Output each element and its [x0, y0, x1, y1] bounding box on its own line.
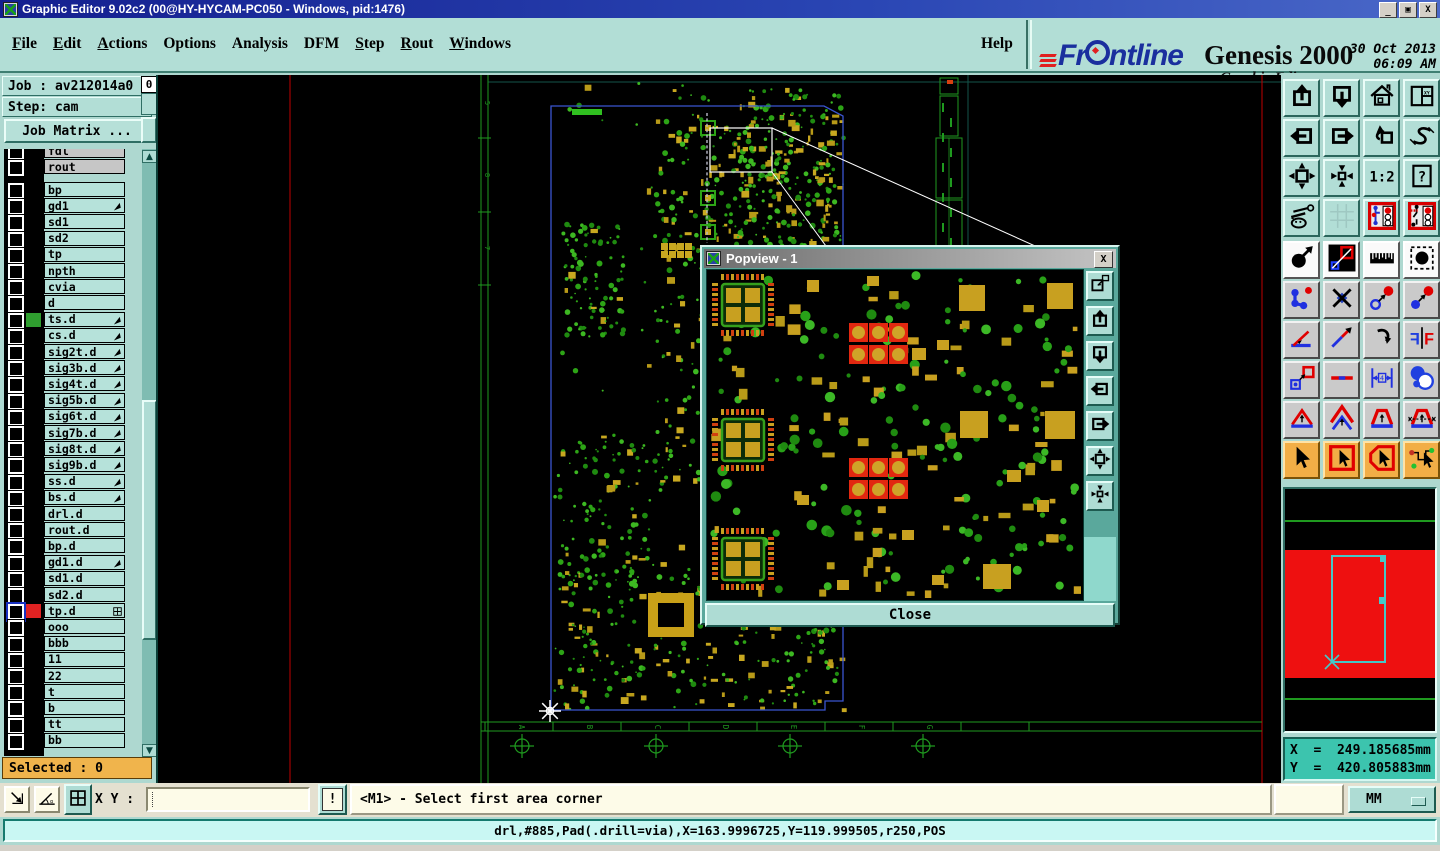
layer-checkbox[interactable]: [8, 248, 24, 264]
layer-name[interactable]: sig9b.d: [44, 457, 125, 472]
layer-checkbox[interactable]: [8, 507, 24, 523]
layer-row[interactable]: rout.d: [2, 522, 141, 538]
resize-pointer-icon: [7, 788, 27, 812]
layer-name[interactable]: sig4t.d: [44, 376, 125, 391]
layer-checkbox[interactable]: [8, 491, 24, 507]
mirror-feature-button[interactable]: FF: [1403, 321, 1440, 359]
layer-row[interactable]: t: [2, 684, 141, 700]
measure-angle-icon: [1288, 324, 1316, 356]
close-button[interactable]: X: [1419, 2, 1437, 18]
center-view-icon: [1328, 162, 1356, 194]
snap-angle-button[interactable]: α: [34, 786, 60, 813]
layer-color-swatch: [26, 313, 41, 327]
menu-item-file[interactable]: File: [12, 35, 37, 53]
draw-line-button[interactable]: [1323, 321, 1360, 359]
layer-arrow-icon: [113, 413, 122, 422]
list-counter-cell: [141, 93, 157, 115]
layer-name[interactable]: sd1: [44, 214, 125, 229]
layer-name[interactable]: sd2: [44, 231, 125, 246]
svg-text:5: 5: [483, 101, 491, 105]
touching-features-button[interactable]: [1403, 361, 1440, 399]
pan-right-button[interactable]: [1323, 119, 1360, 157]
contour-fill-4-icon: [1408, 404, 1436, 436]
pop-zoom-in-icon: [1089, 308, 1111, 334]
layer-arrow-icon: [113, 559, 122, 568]
layer-name[interactable]: tp: [44, 247, 125, 262]
alert-button-frame: !: [318, 784, 347, 815]
menu-item-step[interactable]: Step: [355, 35, 384, 53]
pop-zoom-in-button[interactable]: [1086, 306, 1114, 336]
layer-checkbox[interactable]: [8, 539, 24, 555]
layer-row[interactable]: bp.d: [2, 538, 141, 554]
layer-row[interactable]: sd2: [2, 231, 141, 247]
bottom-spacer: [1274, 784, 1344, 815]
move-to-layer-icon: [1408, 284, 1436, 316]
layer-checkbox[interactable]: [8, 199, 24, 215]
measure-ruler-icon: [1368, 244, 1396, 276]
layer-checkbox[interactable]: [8, 458, 24, 474]
move-feature-button[interactable]: [1283, 241, 1320, 279]
pop-zoom-out-icon: [1089, 343, 1111, 369]
grid-setup-icon: [1328, 202, 1356, 234]
layer-name[interactable]: sd1.d: [44, 571, 125, 586]
svg-text:D: D: [721, 725, 730, 730]
layer-row[interactable]: 22: [2, 668, 141, 684]
split-views-xy-button[interactable]: XY: [1403, 79, 1440, 117]
select-mode-contour-button[interactable]: [1363, 441, 1400, 479]
select-chain-icon: [1288, 284, 1316, 316]
pan-left-button[interactable]: [1283, 119, 1320, 157]
display-profile-2-button[interactable]: [1403, 199, 1440, 237]
fit-window-icon: [1288, 162, 1316, 194]
layer-row[interactable]: sig7b.d: [2, 425, 141, 441]
layer-row[interactable]: tp.d: [2, 603, 141, 619]
dropdown-indicator: [1411, 797, 1426, 806]
menu-item-dfm[interactable]: DFM: [304, 35, 339, 53]
snap-angle-icon: α: [37, 788, 57, 812]
display-profile-1-icon: [1368, 202, 1396, 234]
layer-name[interactable]: bbb: [44, 636, 125, 651]
job-matrix-button[interactable]: Job Matrix ...: [4, 119, 150, 143]
layer-row[interactable]: sig3b.d: [2, 360, 141, 376]
alert-button[interactable]: !: [322, 788, 343, 811]
layer-checkbox[interactable]: [8, 280, 24, 296]
layer-arrow-icon: [113, 364, 122, 373]
layer-name[interactable]: bp: [44, 182, 125, 197]
layer-name[interactable]: sig3b.d: [44, 360, 125, 375]
measure-ruler-button[interactable]: [1363, 241, 1400, 279]
svg-text:1:2: 1:2: [1369, 169, 1394, 185]
layer-checkbox[interactable]: [8, 442, 24, 458]
pop-pan-left-icon: [1089, 378, 1111, 404]
layer-checkbox[interactable]: [8, 475, 24, 491]
select-mode-net-button[interactable]: [1403, 441, 1440, 479]
layer-checkbox[interactable]: [8, 296, 24, 312]
copy-to-layer-icon: [1368, 284, 1396, 316]
layer-checkbox[interactable]: [8, 556, 24, 572]
help-context-button[interactable]: ?: [1403, 159, 1440, 197]
select-mode-single-icon: [1288, 444, 1316, 476]
layer-name[interactable]: sig5b.d: [44, 393, 125, 408]
layer-row[interactable]: 11: [2, 652, 141, 668]
pop-fit-window-icon: [1089, 448, 1111, 474]
layer-name[interactable]: bb: [44, 733, 125, 748]
svg-text:B: B: [585, 725, 594, 730]
pane-grid-button[interactable]: [64, 784, 92, 815]
datetime-display: 30 Oct 201306:09 AM: [1350, 42, 1436, 72]
layer-checkbox[interactable]: [8, 653, 24, 669]
touching-features-icon: [1408, 364, 1436, 396]
layer-arrow-icon: [113, 494, 122, 503]
layer-checkbox[interactable]: [8, 232, 24, 248]
layer-row[interactable]: ts.d: [2, 312, 141, 328]
popout-view-button[interactable]: [1086, 271, 1114, 301]
zoom-out-button[interactable]: [1323, 79, 1360, 117]
prompt-message-bar: <M1> - Select first area corner: [350, 784, 1272, 815]
navigator-handle: [1380, 556, 1386, 562]
layer-checkbox[interactable]: [8, 361, 24, 377]
svg-text:A: A: [517, 725, 526, 730]
layer-name[interactable]: fdl: [44, 149, 125, 158]
layer-row[interactable]: bp: [2, 182, 141, 198]
layer-checkbox[interactable]: [8, 183, 24, 199]
move-feature-icon: [1288, 244, 1316, 276]
layer-row[interactable]: cs.d: [2, 328, 141, 344]
layer-name[interactable]: tp.d: [44, 603, 125, 618]
zoom-in-button[interactable]: [1283, 79, 1320, 117]
popout-view-icon: [1089, 273, 1111, 299]
layer-row[interactable]: b: [2, 700, 141, 716]
layer-scrollbar-thumb[interactable]: [142, 400, 157, 640]
select-pad-button[interactable]: [1403, 241, 1440, 279]
layer-arrow-icon: [113, 348, 122, 357]
rotate-feature-icon: [1368, 324, 1396, 356]
layer-checkbox[interactable]: [8, 718, 24, 734]
layer-arrow-icon: [113, 332, 122, 341]
layer-name[interactable]: gd1.d: [44, 555, 125, 570]
layer-checkbox[interactable]: [8, 377, 24, 393]
select-mode-net-icon: [1408, 444, 1436, 476]
layer-list: fdlroutbpgd1sd1sd2tpnpthcviadts.dcs.dsig…: [2, 149, 141, 757]
layer-row[interactable]: sig4t.d: [2, 376, 141, 392]
svg-text:C: C: [653, 725, 662, 730]
contour-fill-4-button[interactable]: [1403, 401, 1440, 439]
layer-checkbox[interactable]: [8, 620, 24, 636]
layer-name[interactable]: rout.d: [44, 522, 125, 537]
menu-item-windows[interactable]: Windows: [449, 35, 511, 53]
layer-name[interactable]: d: [44, 295, 125, 310]
resize-feature-button[interactable]: [1283, 361, 1320, 399]
layer-arrow-icon: [113, 429, 122, 438]
popview-window: Popview - 1 X Close: [700, 245, 1120, 625]
pop-fit-window-button[interactable]: [1086, 446, 1114, 476]
popview-titlebar[interactable]: Popview - 1 X: [704, 249, 1116, 268]
serpentine-view-button[interactable]: [1403, 119, 1440, 157]
menu-item-edit[interactable]: Edit: [53, 35, 81, 53]
layer-checkbox[interactable]: [8, 523, 24, 539]
popview-title: Popview - 1: [726, 251, 798, 266]
center-view-button[interactable]: [1323, 159, 1360, 197]
layer-row[interactable]: fdl: [2, 149, 141, 159]
layer-row[interactable]: sd1: [2, 214, 141, 230]
menu-item-options[interactable]: Options: [163, 35, 216, 53]
pan-left-icon: [1288, 122, 1316, 154]
layer-checkbox[interactable]: [8, 637, 24, 653]
step-name-field[interactable]: Step: cam: [2, 97, 152, 117]
layer-name[interactable]: 11: [44, 652, 125, 667]
layer-row[interactable]: sig2t.d: [2, 344, 141, 360]
list-mini-button[interactable]: [141, 117, 157, 143]
layer-row[interactable]: bbb: [2, 636, 141, 652]
layer-arrow-icon: [113, 202, 122, 211]
contour-fill-1-button[interactable]: [1283, 401, 1320, 439]
svg-text:F: F: [1409, 330, 1419, 348]
draw-line-icon: [1328, 324, 1356, 356]
layer-name[interactable]: sig2t.d: [44, 344, 125, 359]
layer-checkbox[interactable]: [8, 345, 24, 361]
split-views-xy-icon: XY: [1408, 82, 1436, 114]
select-mode-box-button[interactable]: [1323, 441, 1360, 479]
layer-arrow-icon: [113, 397, 122, 406]
zoom-out-icon: [1328, 82, 1356, 114]
layer-arrow-icon: [113, 445, 122, 454]
home-view-button[interactable]: [1363, 79, 1400, 117]
job-name-field[interactable]: Job : av212014a0: [2, 76, 152, 96]
svg-text:8: 8: [483, 173, 491, 177]
window-title: Graphic Editor 9.02c2 (00@HY-HYCAM-PC050…: [22, 2, 405, 16]
layer-color-swatch: [26, 604, 41, 618]
layer-name[interactable]: sig8t.d: [44, 441, 125, 456]
layer-row[interactable]: ooo: [2, 619, 141, 635]
layer-name[interactable]: npth: [44, 263, 125, 278]
layer-row[interactable]: d: [2, 295, 141, 311]
layer-name[interactable]: drl.d: [44, 506, 125, 521]
popview-canvas[interactable]: [706, 269, 1084, 601]
layer-name[interactable]: sd2.d: [44, 587, 125, 602]
select-mode-box-icon: [1328, 444, 1356, 476]
layer-checkbox[interactable]: [8, 394, 24, 410]
layer-row[interactable]: rout: [2, 159, 141, 175]
contour-fill-3-button[interactable]: [1363, 401, 1400, 439]
rotate-feature-button[interactable]: [1363, 321, 1400, 359]
menu-item-analysis[interactable]: Analysis: [232, 35, 288, 53]
layer-row[interactable]: tp: [2, 247, 141, 263]
layer-checkbox[interactable]: [8, 701, 24, 717]
layer-name[interactable]: bp.d: [44, 538, 125, 553]
layer-arrow-icon: [113, 316, 122, 325]
popview-toolbar-filler: [1084, 537, 1116, 601]
layer-name[interactable]: rout: [44, 159, 125, 174]
break-segment-icon: [1328, 364, 1356, 396]
layer-row[interactable]: sig8t.d: [2, 441, 141, 457]
layer-name[interactable]: tt: [44, 717, 125, 732]
layer-row[interactable]: sd2.d: [2, 587, 141, 603]
fit-window-button[interactable]: [1283, 159, 1320, 197]
layer-grid-icon: [113, 607, 122, 616]
layer-row[interactable]: gd1.d: [2, 555, 141, 571]
copy-to-layer-button[interactable]: [1363, 281, 1400, 319]
serpentine-view-icon: [1408, 122, 1436, 154]
select-mode-single-button[interactable]: [1283, 441, 1320, 479]
scroll-down-arrow[interactable]: ▼: [142, 744, 157, 757]
xy-label: X Y :: [95, 792, 134, 807]
layer-checkbox[interactable]: [8, 313, 24, 329]
bottom-control-strip: α X Y : ! <M1> - Select first area corne…: [0, 783, 1440, 817]
unselect-x-button[interactable]: [1323, 281, 1360, 319]
window-bottom-edge: [0, 845, 1440, 851]
svg-text:?: ?: [1417, 169, 1425, 185]
popview-close-icon[interactable]: X: [1094, 251, 1113, 268]
menu-item-actions[interactable]: Actions: [97, 35, 147, 53]
pop-pan-right-icon: [1089, 413, 1111, 439]
layer-checkbox[interactable]: [8, 426, 24, 442]
navigator-handle: [1379, 597, 1386, 604]
restore-button[interactable]: ▣: [1399, 2, 1417, 18]
layer-row[interactable]: tt: [2, 717, 141, 733]
contour-fill-3-icon: [1368, 404, 1396, 436]
svg-text:F: F: [1424, 330, 1434, 348]
layer-arrow-icon: [113, 461, 122, 470]
layer-row[interactable]: drl.d: [2, 506, 141, 522]
mirror-feature-icon: FF: [1408, 324, 1436, 356]
minimize-button[interactable]: _: [1379, 2, 1397, 18]
xy-input[interactable]: [146, 787, 310, 812]
scale-1-2-icon: 1:2: [1368, 162, 1396, 194]
layer-name[interactable]: cs.d: [44, 328, 125, 343]
layer-row[interactable]: cvia: [2, 279, 141, 295]
layer-arrow-icon: [113, 380, 122, 389]
layer-name[interactable]: 22: [44, 668, 125, 683]
scale-1-2-button[interactable]: 1:2: [1363, 159, 1400, 197]
pop-zoom-out-button[interactable]: [1086, 341, 1114, 371]
cursor-coordinates: X = 249.185685mm Y = 420.805883mm: [1283, 737, 1437, 781]
resize-feature-icon: [1288, 364, 1316, 396]
layer-checkbox[interactable]: [8, 410, 24, 426]
layer-name[interactable]: t: [44, 684, 125, 699]
previous-view-button[interactable]: [1363, 119, 1400, 157]
layer-checkbox[interactable]: [8, 669, 24, 685]
menubar: FileEditActionsOptionsAnalysisDFMStepRou…: [0, 18, 1440, 73]
layer-name[interactable]: bs.d: [44, 490, 125, 505]
navigator-panel[interactable]: [1283, 487, 1437, 733]
layer-name[interactable]: ss.d: [44, 474, 125, 489]
reshape-feature-button[interactable]: [1323, 241, 1360, 279]
grid-setup-button[interactable]: [1323, 199, 1360, 237]
pop-center-view-button[interactable]: [1086, 481, 1114, 511]
select-pad-icon: [1408, 244, 1436, 276]
svg-text:G: G: [925, 725, 934, 730]
layer-row[interactable]: bs.d: [2, 490, 141, 506]
product-title: Genesis 2000: [1204, 40, 1353, 71]
navigator-green-line: [1285, 698, 1435, 700]
right-sidebar: XY1:2?FF4: [1281, 73, 1440, 851]
layer-name[interactable]: b: [44, 700, 125, 715]
svg-text:XY: XY: [1424, 90, 1430, 96]
popview-icon: [706, 251, 721, 266]
layer-row[interactable]: sig5b.d: [2, 393, 141, 409]
pop-pan-right-button[interactable]: [1086, 411, 1114, 441]
layer-name[interactable]: cvia: [44, 279, 125, 294]
layer-checkbox[interactable]: [8, 329, 24, 345]
layer-row[interactable]: sig9b.d: [2, 457, 141, 473]
break-segment-button[interactable]: [1323, 361, 1360, 399]
svg-text:E: E: [789, 725, 798, 730]
frontline-logo: Frntline: [1058, 39, 1183, 73]
pop-center-view-icon: [1089, 483, 1111, 509]
layer-row[interactable]: sig6t.d: [2, 409, 141, 425]
contour-fill-2-icon: [1328, 404, 1356, 436]
select-mode-contour-icon: [1368, 444, 1396, 476]
text-caret: [152, 792, 154, 807]
layer-name[interactable]: sig6t.d: [44, 409, 125, 424]
layer-checkbox[interactable]: [8, 264, 24, 280]
reshape-feature-icon: [1328, 244, 1356, 276]
menu-help[interactable]: Help: [981, 35, 1013, 53]
navigator-x-marker: [1323, 653, 1341, 671]
layer-name[interactable]: ooo: [44, 619, 125, 634]
measure-angle-button[interactable]: [1283, 321, 1320, 359]
layer-row[interactable]: npth: [2, 263, 141, 279]
pan-right-icon: [1328, 122, 1356, 154]
menu-item-rout[interactable]: Rout: [401, 35, 434, 53]
setup-tools-icon: [1288, 202, 1316, 234]
layer-name[interactable]: gd1: [44, 198, 125, 213]
display-profile-2-icon: [1408, 202, 1436, 234]
layer-checkbox[interactable]: [8, 685, 24, 701]
navigator-green-line: [1285, 520, 1435, 522]
navigator-view-rect[interactable]: [1331, 555, 1386, 663]
help-context-icon: ?: [1408, 162, 1436, 194]
pane-grid-icon: [68, 788, 88, 812]
layer-checkbox[interactable]: [8, 734, 24, 750]
home-view-icon: [1368, 82, 1396, 114]
selected-count-bar: Selected : 0: [2, 757, 152, 779]
layer-name[interactable]: sig7b.d: [44, 425, 125, 440]
display-profile-1-button[interactable]: [1363, 199, 1400, 237]
layer-name[interactable]: ts.d: [44, 312, 125, 327]
change-width-icon: 4: [1368, 364, 1396, 396]
layer-checkbox[interactable]: [8, 572, 24, 588]
layer-checkbox[interactable]: [8, 588, 24, 604]
layer-checkbox[interactable]: [8, 215, 24, 231]
contour-fill-2-button[interactable]: [1323, 401, 1360, 439]
layer-row[interactable]: gd1: [2, 198, 141, 214]
layer-row[interactable]: ss.d: [2, 474, 141, 490]
setup-tools-button[interactable]: [1283, 199, 1320, 237]
resize-pointer-button[interactable]: [4, 786, 30, 813]
select-chain-button[interactable]: [1283, 281, 1320, 319]
scroll-up-arrow[interactable]: ▲: [142, 150, 157, 163]
popview-close-button[interactable]: Close: [705, 603, 1115, 627]
layer-row[interactable]: bb: [2, 733, 141, 749]
layer-arrow-icon: [113, 478, 122, 487]
app-icon: [3, 2, 18, 17]
change-width-button[interactable]: 4: [1363, 361, 1400, 399]
layer-row[interactable]: sd1.d: [2, 571, 141, 587]
layer-checkbox[interactable]: [8, 160, 24, 176]
contour-fill-1-icon: [1288, 404, 1316, 436]
svg-text:4: 4: [1379, 374, 1383, 382]
zoom-in-icon: [1288, 82, 1316, 114]
layer-checkbox[interactable]: [8, 604, 24, 620]
frontline-logo-lines: [1040, 52, 1056, 69]
status-bar: drl,#885,Pad(.drill=via),X=163.9996725,Y…: [3, 819, 1437, 842]
previous-view-icon: [1368, 122, 1396, 154]
move-to-layer-button[interactable]: [1403, 281, 1440, 319]
pop-pan-left-button[interactable]: [1086, 376, 1114, 406]
units-dropdown[interactable]: MM: [1348, 786, 1436, 813]
window-titlebar: Graphic Editor 9.02c2 (00@HY-HYCAM-PC050…: [0, 0, 1440, 18]
